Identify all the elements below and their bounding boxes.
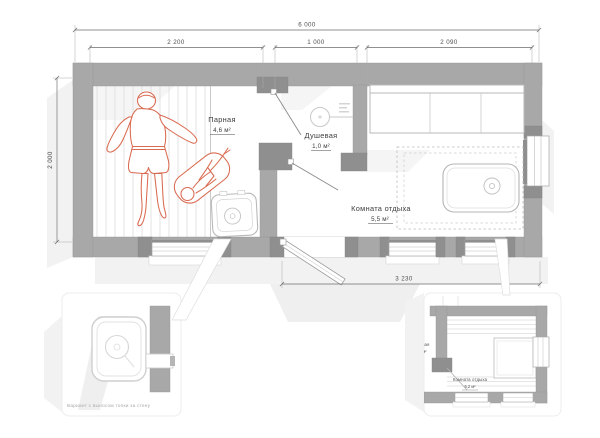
sauna-floor-plan: 6 000 2 200 1 000 2 090 2 000 3 230 Парн… [0, 0, 600, 438]
wall-top [73, 63, 542, 86]
mini-label-rest-area: 5,2 м² [464, 384, 476, 389]
mini-label-rest: Комната отдыха [453, 377, 488, 382]
detail-wall [150, 306, 170, 392]
mini-bed [494, 338, 536, 378]
dim-total: 6 000 [298, 22, 316, 29]
label-shower-area: 1,0 м² [312, 143, 330, 150]
dim-bottom: 3 230 [395, 276, 413, 283]
coffee-table [443, 164, 519, 212]
label-steam-area: 4,6 м² [213, 127, 231, 134]
dim-seg2: 1 000 [307, 39, 325, 46]
firebox-door [170, 356, 175, 366]
wall-steam-rest [260, 170, 277, 237]
dim-seg3: 2 090 [440, 39, 458, 46]
jamb-rest-door [341, 153, 367, 171]
firebox-tunnel [146, 354, 173, 368]
label-steam-room: Парная [208, 115, 236, 124]
dim-height: 2 000 [47, 151, 54, 169]
sofa [370, 85, 524, 133]
wall-corner-block [259, 143, 292, 170]
label-rest-room: Комната отдыха [351, 204, 411, 213]
mini-window-right [533, 337, 549, 367]
callout-stove-caption: Вариант с выносом топки за стену [67, 403, 151, 409]
label-shower-room: Душевая [305, 131, 338, 140]
callout-card-rest: Душевая 1,0 м² Комната отдыха 5,2 м² [410, 293, 561, 416]
wall-shower-rest [353, 85, 367, 155]
sauna-stove [211, 190, 258, 237]
label-rest-area: 5,5 м² [371, 216, 389, 223]
wall-left [73, 63, 93, 257]
dim-seg1: 2 200 [167, 39, 185, 46]
